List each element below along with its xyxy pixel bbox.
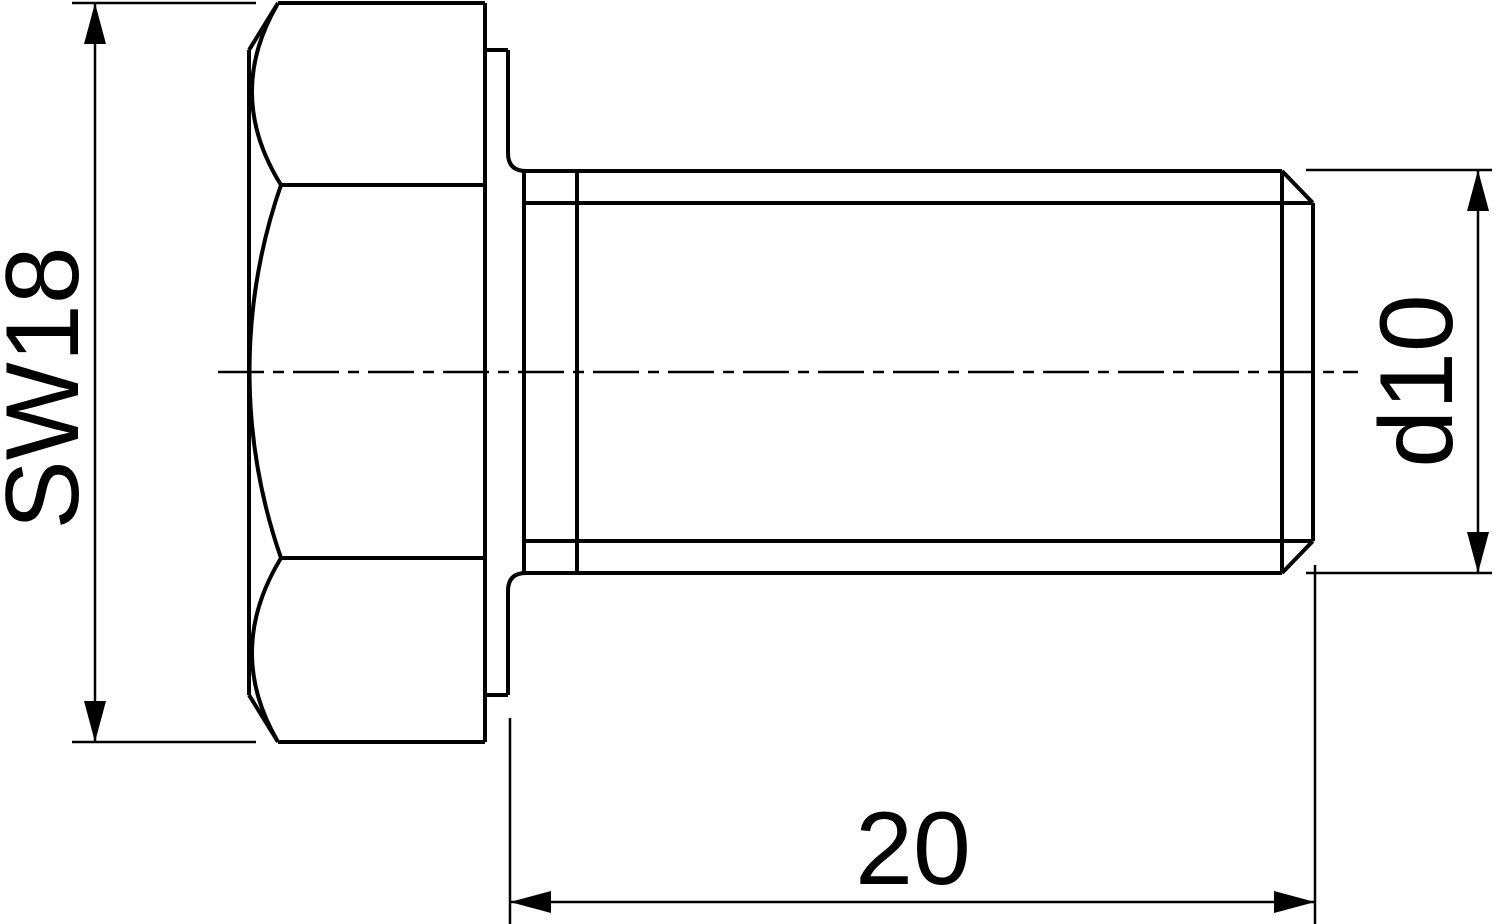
d10-arrow-down-icon <box>1467 532 1489 573</box>
length-dimension-label: 20 <box>855 791 971 907</box>
d10-arrow-up-icon <box>1467 170 1489 211</box>
sw18-arrow-down-icon <box>84 701 106 742</box>
length-arrow-left-icon <box>510 891 551 913</box>
length-arrow-right-icon <box>1274 891 1315 913</box>
dimension-sw18: SW18 <box>0 3 256 742</box>
tip-chamfer-bottom <box>1282 541 1313 573</box>
flange-right-edge-top-with-fillet <box>508 50 526 171</box>
hex-bolt-drawing: SW18 d10 20 <box>0 0 1500 924</box>
head-top-face-chamfer-arc <box>252 5 281 185</box>
d10-dimension-label: d10 <box>1359 294 1475 468</box>
dimension-length-20: 20 <box>510 565 1315 924</box>
technical-drawing-page: SW18 d10 20 <box>0 0 1500 924</box>
head-bottom-face-chamfer-arc <box>252 558 281 740</box>
sw18-arrow-up-icon <box>84 3 106 44</box>
flange-right-edge-bottom-with-fillet <box>508 573 526 695</box>
tip-chamfer-top <box>1282 171 1313 203</box>
sw18-dimension-label: SW18 <box>0 246 101 529</box>
